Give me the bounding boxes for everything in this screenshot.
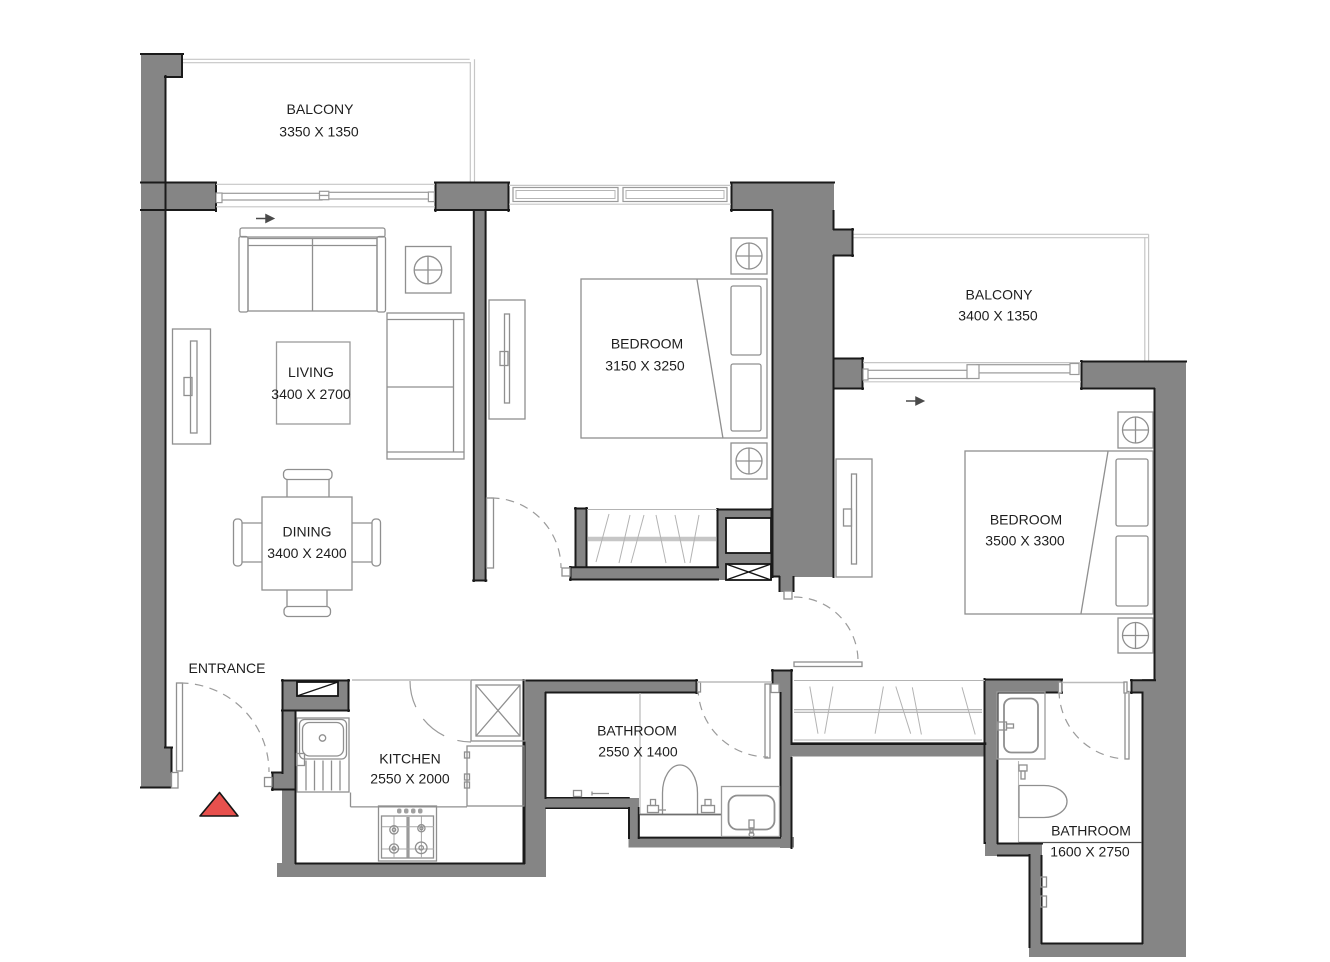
svg-text:BEDROOM: BEDROOM <box>990 512 1062 528</box>
svg-text:1600 X 2750: 1600 X 2750 <box>1050 844 1130 860</box>
svg-text:DINING: DINING <box>283 524 332 540</box>
svg-text:3350 X 1350: 3350 X 1350 <box>279 124 359 140</box>
svg-text:3400 X 2400: 3400 X 2400 <box>267 545 347 561</box>
svg-text:3400 X 1350: 3400 X 1350 <box>958 308 1038 324</box>
svg-text:3400 X 2700: 3400 X 2700 <box>271 386 351 402</box>
svg-text:BATHROOM: BATHROOM <box>1051 823 1131 839</box>
svg-text:2550 X 1400: 2550 X 1400 <box>598 744 678 760</box>
svg-text:KITCHEN: KITCHEN <box>379 751 440 767</box>
svg-text:3500 X 3300: 3500 X 3300 <box>985 533 1065 549</box>
svg-text:BEDROOM: BEDROOM <box>611 336 683 352</box>
svg-text:3150 X 3250: 3150 X 3250 <box>605 358 685 374</box>
svg-text:BATHROOM: BATHROOM <box>597 723 677 739</box>
svg-text:2550 X 2000: 2550 X 2000 <box>370 771 450 787</box>
svg-text:BALCONY: BALCONY <box>966 287 1034 303</box>
svg-text:LIVING: LIVING <box>288 364 334 380</box>
svg-text:BALCONY: BALCONY <box>287 101 355 117</box>
svg-text:ENTRANCE: ENTRANCE <box>188 660 265 676</box>
